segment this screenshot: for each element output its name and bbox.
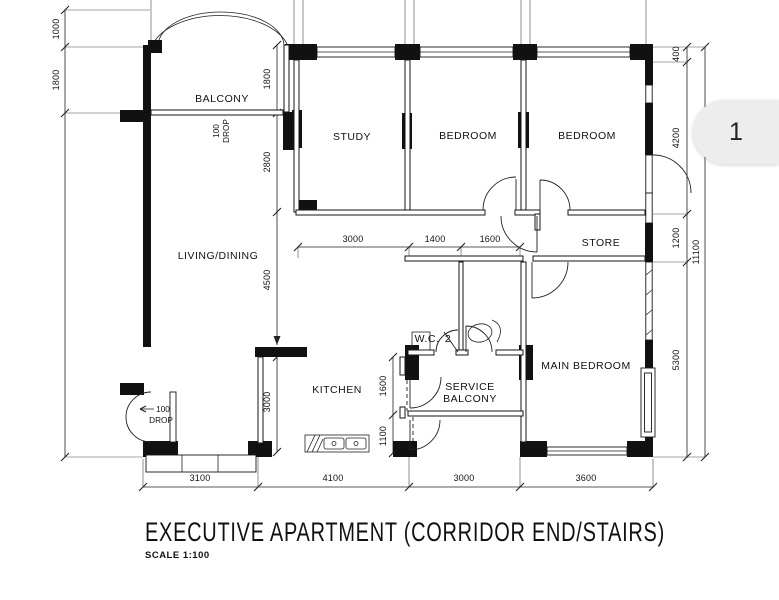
floor-plan-svg: 1000 1800 400 4200 1200 5300 11100 3100 … xyxy=(0,0,779,600)
page-indicator-label: 1 xyxy=(729,118,743,147)
title-block: EXECUTIVE APARTMENT (CORRIDOR END/STAIRS… xyxy=(145,517,665,561)
door-right-leaf xyxy=(646,155,652,193)
dim-top-3000: 3000 xyxy=(343,234,364,244)
window-top-bedroom-mid xyxy=(420,47,513,57)
dimension-interior-top-chain: 3000 1400 1600 xyxy=(294,234,524,258)
window-living-bay xyxy=(146,455,256,472)
drop-annotations: 100 DROP 100 DROP xyxy=(140,119,231,425)
dim-right-400: 400 xyxy=(671,46,681,62)
dim-balcony-1800: 1800 xyxy=(262,69,272,90)
dim-right-5300: 5300 xyxy=(671,350,681,371)
label-living-dining: LIVING/DINING xyxy=(178,250,259,262)
page-indicator-tab[interactable]: 1 xyxy=(693,100,779,164)
window-right-mid xyxy=(646,193,652,223)
window-right-louvre xyxy=(646,262,652,340)
drawing-scale: SCALE 1:100 xyxy=(145,550,210,561)
label-study: STUDY xyxy=(333,131,371,143)
dim-bottom-3600: 3600 xyxy=(576,473,597,483)
label-service: SERVICE xyxy=(445,381,494,393)
label-service-balcony: BALCONY xyxy=(443,393,497,405)
dim-dining-4500: 4500 xyxy=(262,270,272,291)
door-service-balcony-1 xyxy=(410,377,441,408)
dim-service-1600: 1600 xyxy=(378,376,388,397)
dim-left-1800: 1800 xyxy=(51,70,61,91)
balcony-drop-100: 100 xyxy=(212,124,221,138)
dim-study-2800: 2800 xyxy=(262,152,272,173)
door-bedroom-right xyxy=(540,180,570,210)
floor-plan-page: 1000 1800 400 4200 1200 5300 11100 3100 … xyxy=(0,0,779,600)
dim-left-1000: 1000 xyxy=(51,19,61,40)
window-main-bedroom-bottom xyxy=(547,447,627,455)
dim-bottom-4100: 4100 xyxy=(323,473,344,483)
label-wc: W.C. xyxy=(415,333,440,345)
drawing-title: EXECUTIVE APARTMENT (CORRIDOR END/STAIRS… xyxy=(145,517,665,547)
label-bedroom-mid: BEDROOM xyxy=(439,130,497,142)
label-store: STORE xyxy=(582,237,620,249)
door-main-bedroom xyxy=(532,262,568,298)
dim-top-1600: 1600 xyxy=(480,234,501,244)
dimension-right: 400 4200 1200 5300 11100 xyxy=(653,43,709,461)
label-main-bedroom: MAIN BEDROOM xyxy=(541,360,630,372)
label-kitchen: KITCHEN xyxy=(312,384,362,396)
entrance-drop-100: 100 xyxy=(156,405,170,414)
window-top-bedroom-right xyxy=(537,47,630,57)
dim-right-total-11100: 11100 xyxy=(691,240,701,265)
dim-right-1200: 1200 xyxy=(671,228,681,249)
label-balcony: BALCONY xyxy=(195,93,249,105)
door-right-exterior xyxy=(653,155,691,193)
balcony-drop-word: DROP xyxy=(222,119,231,143)
kitchen-sink xyxy=(305,435,369,452)
dim-right-4200: 4200 xyxy=(671,128,681,149)
balcony-arc xyxy=(152,12,288,46)
window-top-study xyxy=(317,47,395,57)
dim-bottom-3100: 3100 xyxy=(190,473,211,483)
dimension-interior-left-chain: 1800 2800 4500 3000 xyxy=(262,41,281,456)
window-right-upper xyxy=(646,85,652,103)
door-bedroom-mid xyxy=(483,177,516,210)
window-main-bedroom-bay xyxy=(641,368,655,437)
dim-bottom-3000: 3000 xyxy=(454,473,475,483)
entrance-drop-word: DROP xyxy=(149,416,173,425)
dim-top-1400: 1400 xyxy=(425,234,446,244)
label-bedroom-right: BEDROOM xyxy=(558,130,616,142)
label-wc-number: 2 xyxy=(445,333,451,345)
dim-service-1100: 1100 xyxy=(378,426,388,446)
